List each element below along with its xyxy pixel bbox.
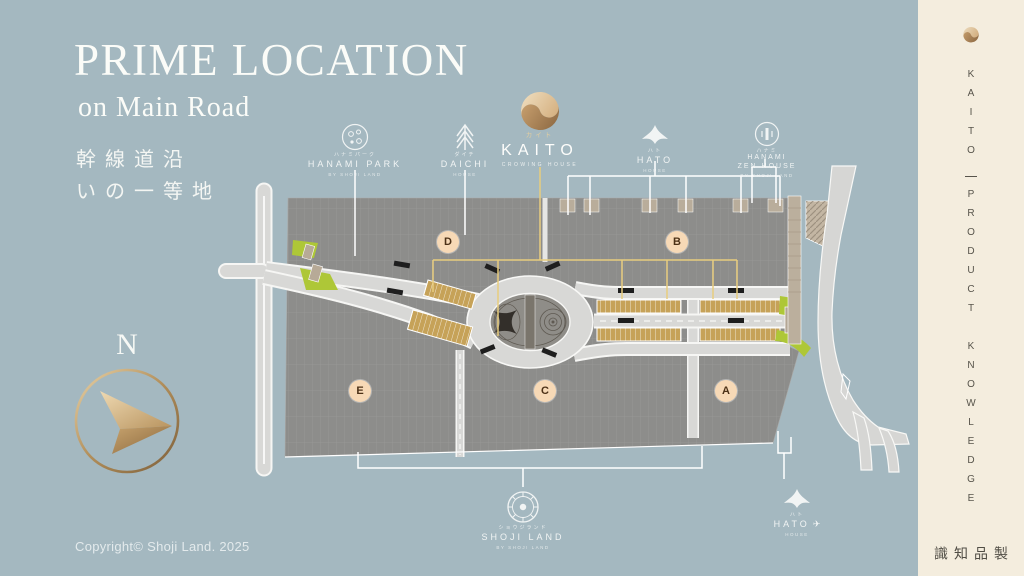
hato-bottom-jp: ハト <box>790 512 804 518</box>
daichi-sub: HOUSE <box>453 172 477 178</box>
main-road <box>818 166 909 472</box>
jp-tagline-line2: いの一等地 <box>76 176 221 208</box>
zone-label-a: A <box>715 380 737 402</box>
hanami-zen-sub: BY SHOJI LAND <box>740 173 793 179</box>
sidebar-tagline: PRODUCT KNOWLEDGE <box>966 189 977 512</box>
hanami-park-sub: BY SHOJI LAND <box>328 172 381 178</box>
kaito-name: KAITO <box>501 141 579 161</box>
daichi-jp: ダイチ <box>454 152 475 158</box>
boulevard <box>574 288 790 355</box>
compass-north-label: N <box>71 328 183 362</box>
compass: N <box>71 328 183 479</box>
kaito-swirl-icon <box>519 90 561 132</box>
hanami-park-icon <box>340 122 370 152</box>
hato-bottom-sub: HOUSE <box>785 532 809 538</box>
sidebar-kaito-swirl-icon <box>944 26 998 43</box>
hato-top-name: HATO <box>637 155 673 166</box>
sidebar-brand: KAITO <box>966 69 977 164</box>
slide: PRIME LOCATION on Main Road 幹線道沿 いの一等地 N <box>0 0 1024 576</box>
logo-hato-bottom: ハト HATO ✈ HOUSE <box>764 486 830 537</box>
logo-hanami-zen: ハナミ HANAMI ZEN HOUSE BY SHOJI LAND <box>734 120 800 178</box>
compass-rose-icon <box>71 368 183 474</box>
roundabout <box>467 276 593 368</box>
hanami-zen-icon <box>753 120 781 148</box>
hanami-zen-jp: ハナミ <box>756 148 777 154</box>
hato-bottom-bird-icon <box>782 486 812 512</box>
page-title: PRIME LOCATION <box>74 34 469 86</box>
shoji-land-name: SHOJI LAND <box>482 532 565 543</box>
hanami-zen-name: HANAMI <box>747 154 786 163</box>
jp-tagline-line1: 幹線道沿 <box>76 144 221 176</box>
plane-icon: ✈ <box>813 519 821 530</box>
logo-hato-top: ハト HATO HOUSE <box>623 122 687 173</box>
hanami-zen-name2: ZEN HOUSE <box>738 163 797 172</box>
hato-top-jp: ハト <box>648 148 662 154</box>
logo-daichi: ダイチ DAICHI HOUSE <box>433 122 497 177</box>
logo-shoji-land: ショウジランド SHOJI LAND BY SHOJI LAND <box>483 489 563 550</box>
sidebar-jp: 製品知識 <box>931 546 1011 576</box>
daichi-name: DAICHI <box>441 159 490 170</box>
zone-label-b: B <box>666 231 688 253</box>
sidebar-divider <box>965 176 977 177</box>
jp-tagline: 幹線道沿 いの一等地 <box>76 144 221 208</box>
shoji-land-jp: ショウジランド <box>498 525 547 531</box>
hanami-park-jp: ハナミパーク <box>334 152 376 158</box>
kaito-jp: カイト <box>526 132 555 140</box>
zone-label-d: D <box>437 231 459 253</box>
sidebar-vertical-text: KAITO PRODUCT KNOWLEDGE <box>965 69 977 512</box>
zone-label-c: C <box>534 380 556 402</box>
page-subtitle: on Main Road <box>78 92 250 124</box>
sidebar: KAITO PRODUCT KNOWLEDGE 製品知識 <box>918 0 1024 576</box>
hato-bird-icon <box>640 122 670 148</box>
copyright-text: Copyright© Shoji Land. 2025 <box>75 539 250 554</box>
kaito-sub: CROWING HOUSE <box>502 162 578 168</box>
logo-hanami-park: ハナミパーク HANAMI PARK BY SHOJI LAND <box>317 122 393 177</box>
zone-label-e: E <box>349 380 371 402</box>
hanami-park-name: HANAMI PARK <box>308 159 402 170</box>
shoji-land-icon <box>505 489 541 525</box>
logo-kaito: カイト KAITO CROWING HOUSE <box>496 90 584 168</box>
daichi-icon <box>450 122 480 152</box>
shoji-land-sub: BY SHOJI LAND <box>496 545 549 551</box>
hato-top-sub: HOUSE <box>643 168 667 174</box>
hato-bottom-name: HATO <box>774 519 810 530</box>
